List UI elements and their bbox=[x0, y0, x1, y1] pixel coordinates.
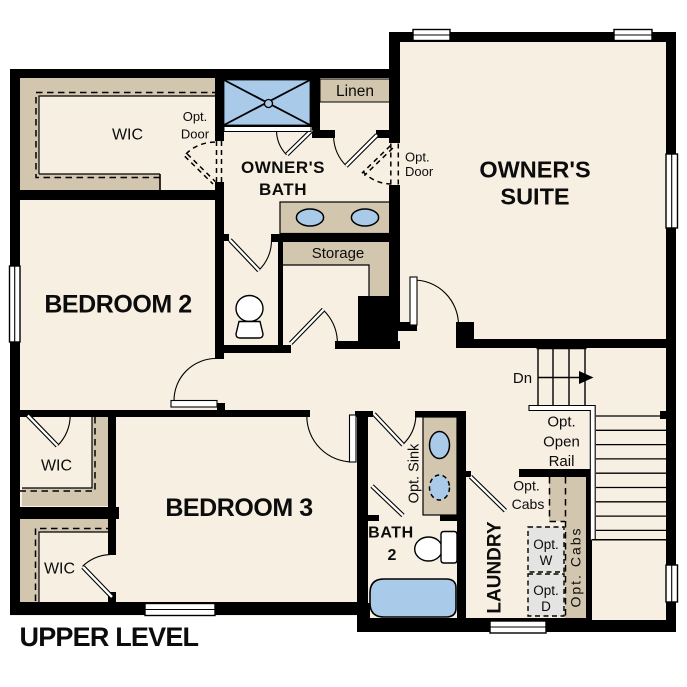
svg-text:LAUNDRY: LAUNDRY bbox=[485, 521, 506, 614]
svg-text:BEDROOM 3: BEDROOM 3 bbox=[165, 494, 312, 522]
svg-text:Opt.: Opt. bbox=[533, 583, 559, 598]
svg-text:Open: Open bbox=[543, 433, 580, 450]
svg-text:BATH: BATH bbox=[259, 180, 307, 199]
svg-text:Opt.: Opt. bbox=[533, 537, 559, 552]
svg-text:WIC: WIC bbox=[41, 458, 72, 475]
svg-text:Cabs: Cabs bbox=[512, 496, 545, 512]
svg-text:Opt.: Opt. bbox=[183, 109, 208, 124]
svg-text:WIC: WIC bbox=[112, 127, 143, 144]
svg-text:W: W bbox=[540, 553, 553, 568]
svg-text:Dn: Dn bbox=[513, 370, 532, 387]
svg-text:Linen: Linen bbox=[336, 83, 374, 100]
svg-text:Opt. Sink: Opt. Sink bbox=[407, 443, 423, 503]
svg-text:WIC: WIC bbox=[44, 561, 75, 578]
svg-text:OWNER'S: OWNER'S bbox=[241, 158, 325, 177]
svg-text:Opt.: Opt. bbox=[405, 149, 430, 164]
svg-text:Door: Door bbox=[181, 126, 210, 141]
svg-text:Door: Door bbox=[405, 164, 434, 179]
svg-text:BATH: BATH bbox=[368, 525, 414, 542]
svg-text:Storage: Storage bbox=[312, 245, 365, 262]
svg-text:OWNER'S: OWNER'S bbox=[479, 157, 590, 183]
svg-text:Rail: Rail bbox=[549, 453, 575, 470]
svg-text:Opt.: Opt. bbox=[547, 413, 575, 430]
svg-text:Opt.: Opt. bbox=[513, 478, 539, 494]
svg-text:UPPER LEVEL: UPPER LEVEL bbox=[20, 622, 199, 652]
svg-text:D: D bbox=[541, 599, 551, 614]
svg-text:BEDROOM 2: BEDROOM 2 bbox=[44, 291, 191, 319]
svg-text:2: 2 bbox=[388, 547, 397, 564]
svg-text:SUITE: SUITE bbox=[500, 184, 569, 210]
svg-text:Opt. Cabs: Opt. Cabs bbox=[568, 526, 584, 607]
